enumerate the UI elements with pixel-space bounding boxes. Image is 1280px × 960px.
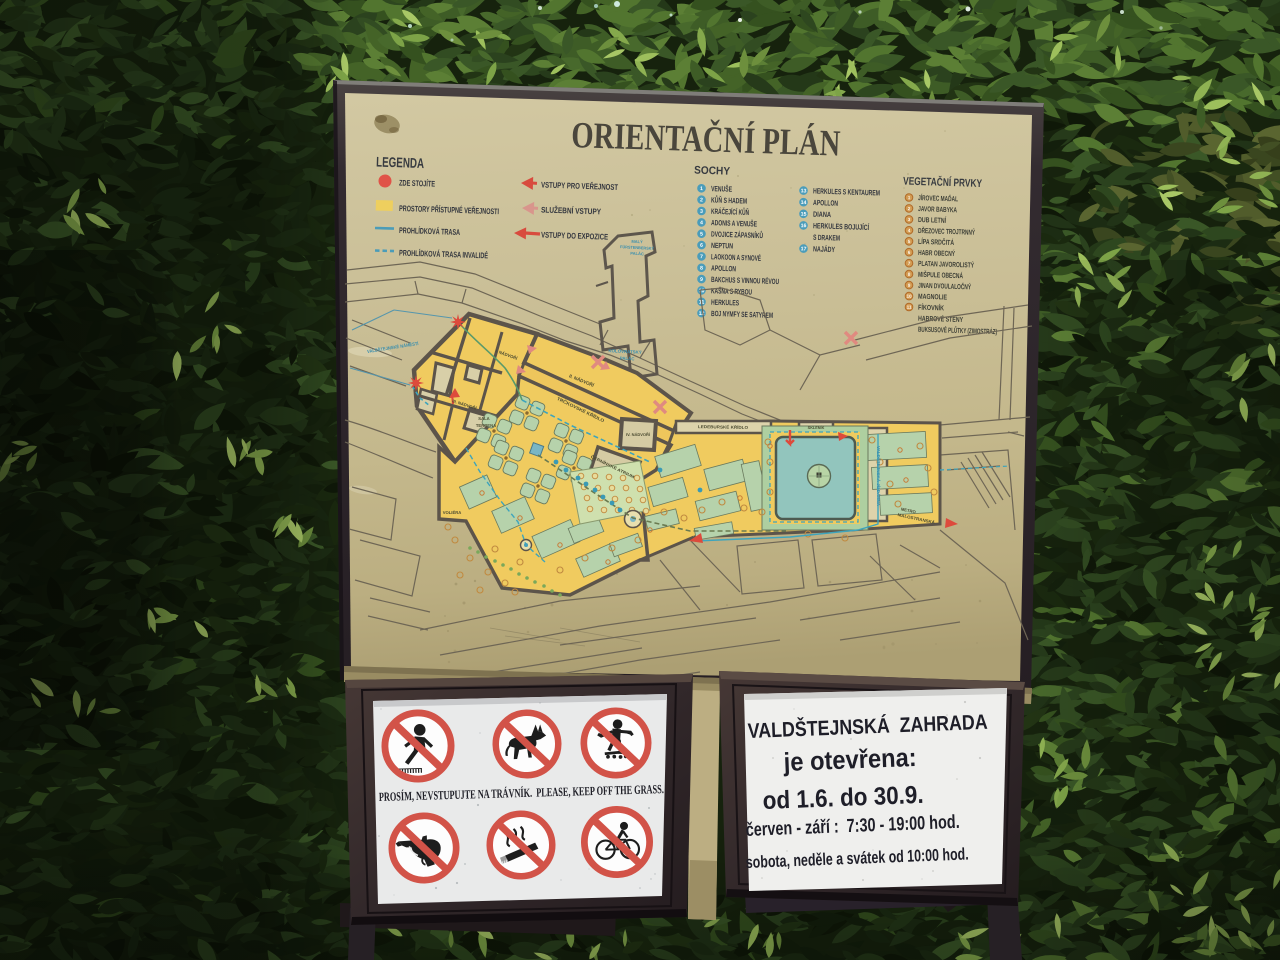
svg-text:SLUŽEBNÍ VSTUPY: SLUŽEBNÍ VSTUPY — [541, 205, 602, 217]
svg-text:je otevřena:: je otevřena: — [782, 742, 917, 777]
svg-text:10: 10 — [906, 294, 912, 299]
svg-text:VALDŠTEJNSKÁ JÍZDÁRNA: VALDŠTEJNSKÁ JÍZDÁRNA — [876, 446, 881, 506]
svg-text:NAJÁDY: NAJÁDY — [813, 244, 835, 254]
svg-text:DIANA: DIANA — [813, 210, 832, 220]
svg-text:JAVOR BABYKA: JAVOR BABYKA — [918, 204, 957, 214]
svg-text:1: 1 — [700, 186, 703, 192]
svg-text:3: 3 — [700, 209, 703, 215]
svg-text:6: 6 — [700, 243, 703, 249]
svg-text:S DRAKEM: S DRAKEM — [813, 233, 840, 243]
svg-text:VENUŠE: VENUŠE — [711, 184, 732, 194]
svg-text:11: 11 — [907, 305, 912, 310]
svg-text:4: 4 — [700, 220, 703, 226]
svg-text:KRÁČEJÍCÍ KŮŇ: KRÁČEJÍCÍ KŮŇ — [711, 206, 749, 217]
svg-text:TERRENA: TERRENA — [476, 423, 496, 428]
svg-text:MALÝ: MALÝ — [631, 239, 643, 245]
svg-text:HERKULES BOJUJÍCÍ: HERKULES BOJUJÍCÍ — [813, 221, 870, 232]
svg-text:ORIENTAČNÍ PLÁN: ORIENTAČNÍ PLÁN — [571, 114, 841, 165]
svg-text:JÍROVEC MAĎAL: JÍROVEC MAĎAL — [918, 193, 959, 203]
svg-text:9: 9 — [700, 277, 703, 283]
svg-text:VEGETAČNÍ PRVKY: VEGETAČNÍ PRVKY — [903, 175, 983, 191]
svg-text:JINAN DVOULALOČNÝ: JINAN DVOULALOČNÝ — [918, 281, 971, 292]
svg-text:SALA: SALA — [478, 416, 489, 421]
svg-text:APOLLON: APOLLON — [711, 264, 736, 274]
svg-text:PALÁC: PALÁC — [620, 356, 636, 362]
svg-text:DUB LETNÍ: DUB LETNÍ — [918, 215, 947, 225]
svg-text:16: 16 — [801, 223, 807, 229]
svg-text:NEPTUN: NEPTUN — [711, 241, 733, 251]
svg-text:LAOKOON A SYNOVÉ: LAOKOON A SYNOVÉ — [711, 252, 761, 263]
svg-text:DŘEZOVEC TROJTRNNÝ: DŘEZOVEC TROJTRNNÝ — [918, 226, 975, 237]
svg-text:PROHLÍDKOVÁ TRASA: PROHLÍDKOVÁ TRASA — [399, 225, 460, 237]
svg-text:14: 14 — [801, 200, 807, 206]
svg-text:APOLLON: APOLLON — [813, 198, 838, 208]
svg-text:SOCHY: SOCHY — [694, 165, 731, 178]
svg-text:MAGNOLIE: MAGNOLIE — [918, 292, 947, 302]
svg-text:LEDEBURSKÉ KŘÍDLO: LEDEBURSKÉ KŘÍDLO — [698, 424, 749, 430]
svg-text:PLATAN JAVOROLISTÝ: PLATAN JAVOROLISTÝ — [918, 259, 974, 270]
svg-text:HABR OBECNÝ: HABR OBECNÝ — [918, 248, 955, 258]
svg-text:FÍKOVNÍK: FÍKOVNÍK — [918, 303, 945, 313]
svg-text:DVOJICE ZÁPASNÍKŮ: DVOJICE ZÁPASNÍKŮ — [711, 229, 764, 241]
svg-text:KŮŇ S HADEM: KŮŇ S HADEM — [711, 194, 747, 205]
svg-text:ADONIS A VENUŠE: ADONIS A VENUŠE — [711, 218, 757, 228]
svg-text:ZDE STOJÍTE: ZDE STOJÍTE — [399, 178, 436, 189]
svg-text:LEGENDA: LEGENDA — [376, 154, 424, 172]
svg-text:MIŠPULE OBECNÁ: MIŠPULE OBECNÁ — [918, 270, 963, 280]
svg-text:7: 7 — [700, 254, 703, 260]
svg-text:5: 5 — [700, 231, 703, 237]
svg-text:13: 13 — [801, 188, 807, 194]
svg-text:2: 2 — [700, 197, 703, 203]
svg-text:15: 15 — [801, 212, 807, 218]
svg-text:IV. NÁDVOŘÍ: IV. NÁDVOŘÍ — [626, 432, 651, 437]
svg-text:HERKULES: HERKULES — [711, 298, 739, 308]
svg-text:VOLIÉRA: VOLIÉRA — [443, 510, 462, 515]
svg-text:8: 8 — [700, 266, 703, 272]
svg-text:17: 17 — [801, 246, 807, 252]
svg-text:LÍPA SRDČITÁ: LÍPA SRDČITÁ — [918, 237, 954, 247]
svg-text:PALÁC: PALÁC — [630, 251, 644, 257]
svg-text:SKLENÍK: SKLENÍK — [808, 425, 825, 430]
